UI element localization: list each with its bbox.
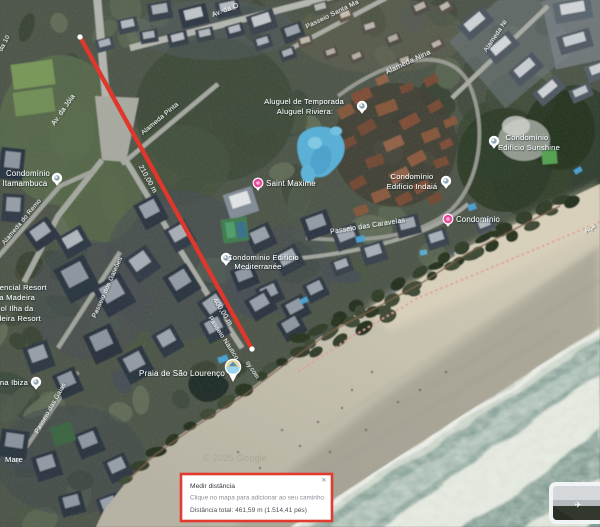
svg-text:Saint Maxime: Saint Maxime — [266, 179, 316, 188]
svg-text:Aluguel Riviera:: Aluguel Riviera: — [277, 107, 333, 116]
svg-text:Aluguel de Temporada: Aluguel de Temporada — [264, 97, 344, 106]
svg-text:deira Resort: deira Resort — [0, 314, 42, 323]
svg-text:Edifício Sunshine: Edifício Sunshine — [498, 143, 560, 152]
svg-text:ol Ilha da: ol Ilha da — [1, 304, 34, 313]
svg-text:dencial Resort: dencial Resort — [0, 283, 47, 292]
svg-text:Condomínio: Condomínio — [391, 172, 434, 181]
svg-text:Condomínio: Condomínio — [456, 215, 501, 224]
svg-text:Medir distância: Medir distância — [190, 483, 235, 490]
svg-text:Condomínio: Condomínio — [506, 133, 549, 142]
svg-text:da Madeira: da Madeira — [0, 293, 36, 302]
svg-text:×: × — [322, 476, 327, 485]
svg-text:Praia de São Lourenço: Praia de São Lourenço — [139, 369, 225, 378]
svg-text:Condomínio Edifício: Condomínio Edifício — [227, 253, 299, 262]
svg-text:Edifício Indaiá: Edifício Indaiá — [387, 182, 438, 191]
svg-text:Mediterranée: Mediterranée — [234, 262, 281, 271]
svg-text:Clique no mapa para adicionar: Clique no mapa para adicionar ao seu cam… — [190, 495, 324, 502]
svg-text:Mare: Mare — [5, 455, 23, 464]
svg-text:✈: ✈ — [574, 500, 582, 510]
svg-text:Itamambuca: Itamambuca — [3, 179, 48, 188]
svg-text:na Ibiza: na Ibiza — [0, 378, 29, 387]
svg-text:Distância total: 461,59 m (1.5: Distância total: 461,59 m (1.514,41 pés) — [190, 507, 307, 514]
svg-text:© 2025 Google: © 2025 Google — [203, 453, 267, 464]
svg-text:Condomínio: Condomínio — [6, 169, 51, 178]
